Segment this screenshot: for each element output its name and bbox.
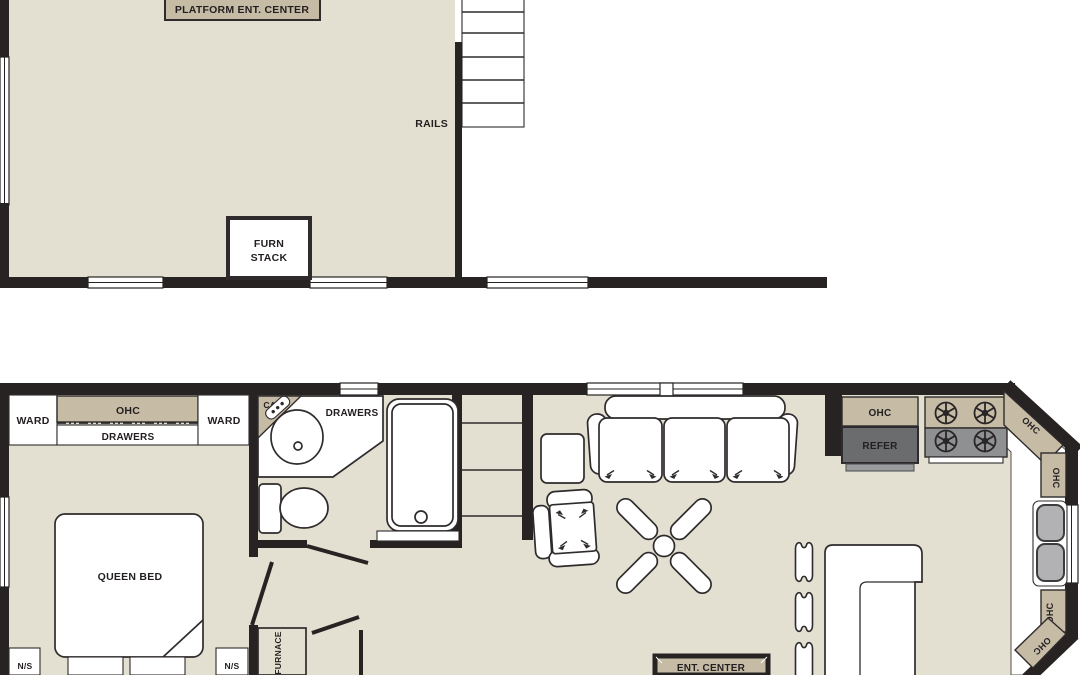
entertainment-center: ENT. CENTER [655,656,768,675]
end-table [541,434,584,483]
kitchen-wall-stub [825,395,842,456]
rails-label: RAILS [415,118,448,130]
bedroom-ohc-label: OHC [116,405,140,417]
bedroom-bath-wall [249,395,258,557]
main-floor-plan: WARD OHC DRAWERS WARD QUEEN BED [0,383,1078,675]
sofa [587,396,798,482]
nightstand-left: N/S [9,648,40,675]
loft-bottom-window-3 [487,277,588,288]
kitchen-island [825,545,922,675]
refer-label: REFER [862,441,898,452]
bedroom-drawers: DRAWERS [57,425,198,445]
right-ohc-upper-label: OHC [1051,468,1061,489]
loft-left-window [0,57,9,205]
ward-right-label: WARD [207,415,240,427]
right-cabinet-upper: OHC [1041,453,1066,497]
ent-center-label: ENT. CENTER [677,663,746,674]
furn-stack-label-line2: STACK [251,252,288,264]
overhead-cabinet-bedroom: OHC [57,396,198,423]
loft-bottom-window-1 [88,277,163,288]
bathtub [377,399,459,541]
bar-stools [796,543,813,675]
kitchen-ohc-label: OHC [869,408,892,419]
bedroom-drawers-label: DRAWERS [102,432,155,443]
refrigerator-cabinet: OHC REFER [842,397,918,471]
loft-furn-stack: FURN STACK [228,218,310,278]
bath-window [340,383,378,395]
queen-bed: QUEEN BED [55,514,203,675]
loft-floor-plan: PLATFORM ENT. CENTER FURN STACK RAILS [0,0,827,288]
wardrobe-right: WARD [198,395,249,445]
loft-bottom-window-2 [310,277,387,288]
bar-stool [796,593,813,632]
floorplan-page: PLATFORM ENT. CENTER FURN STACK RAILS [0,0,1080,675]
floorplan-drawing: PLATFORM ENT. CENTER FURN STACK RAILS [0,0,1080,675]
nightstand-right: N/S [216,648,248,675]
stove [925,397,1007,463]
wardrobe-left: WARD [9,395,57,445]
ns-right-label: N/S [225,661,240,671]
queen-bed-label: QUEEN BED [98,571,163,583]
kitchen-sink [1033,501,1067,586]
stair-right-wall [522,383,533,540]
loft-rail-wall [455,42,462,281]
loft-platform-ent-center: PLATFORM ENT. CENTER [165,0,320,20]
bar-stool [796,543,813,582]
platform-ent-center-label: PLATFORM ENT. CENTER [175,4,309,16]
ns-left-label: N/S [18,661,33,671]
ward-left-label: WARD [16,415,49,427]
vanity-drawers-label: DRAWERS [326,408,379,419]
loft-staircase [462,0,524,127]
bar-stool [796,643,813,675]
bath-bottom-wall [252,540,307,548]
furn-stack-label-line1: FURN [254,238,284,250]
bedroom-window [0,497,9,587]
living-window [587,383,743,397]
furnace-label: FURNACE [273,631,283,674]
